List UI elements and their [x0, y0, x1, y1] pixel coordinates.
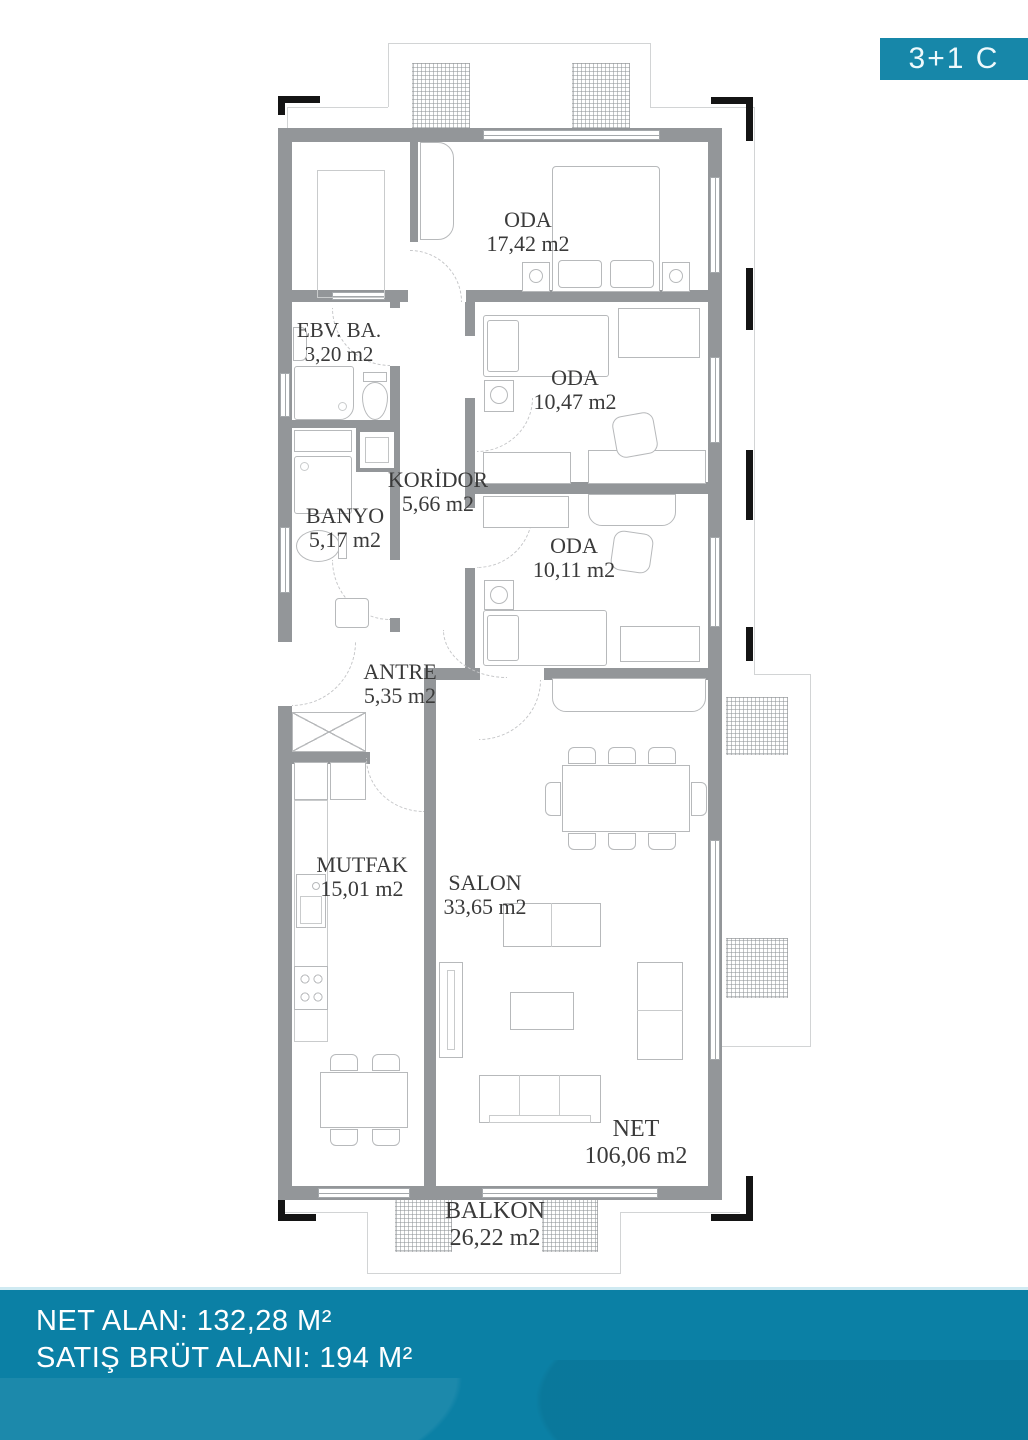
dim-tick — [746, 627, 753, 661]
gap-ebv-door — [390, 308, 400, 366]
sofa-divider — [551, 903, 552, 947]
room-label-koridor: KORİDOR 5,66 m2 — [388, 468, 488, 516]
roof-outline — [650, 43, 651, 107]
chair — [608, 833, 636, 850]
armchair-sofa — [637, 962, 683, 1060]
cabinet — [620, 626, 700, 662]
door-arc-salon — [479, 680, 541, 740]
hatch-top-left — [412, 63, 470, 129]
dim-tick — [711, 1214, 753, 1221]
room-name: ODA — [533, 366, 616, 390]
roof-outline — [388, 43, 389, 107]
room-label-salon: SALON 33,65 m2 — [443, 871, 526, 919]
shower — [294, 366, 354, 420]
kitchen-cabinet — [330, 762, 366, 800]
plan-type-label: 3+1 C — [909, 42, 1000, 76]
room-name: ODA — [486, 208, 569, 232]
room-label-balkon: BALKON 26,22 m2 — [445, 1198, 545, 1252]
room-area: 15,01 m2 — [316, 877, 407, 901]
kitchen-table — [320, 1072, 408, 1128]
window-bedroom-top — [483, 130, 660, 140]
room-name: BANYO — [306, 504, 384, 528]
pillow — [558, 260, 602, 288]
room-name: ANTRE — [363, 660, 436, 684]
chair — [691, 782, 707, 816]
dim-tick — [278, 96, 285, 115]
dim-tick — [746, 268, 753, 330]
window-bedroom-right — [710, 177, 720, 273]
gross-area-text: SATIŞ BRÜT ALANI: 194 M² — [36, 1340, 413, 1377]
roof-outline — [650, 107, 754, 108]
bath-sink — [335, 598, 369, 628]
shower-drain — [338, 402, 347, 411]
balcony-outline — [620, 1212, 621, 1273]
balcony-outline — [620, 1212, 740, 1213]
room-label-mutfak: MUTFAK 15,01 m2 — [316, 853, 407, 901]
pillow — [487, 615, 519, 661]
roof-outline-right — [754, 107, 755, 674]
wardrobe — [420, 142, 454, 240]
room-label-antre: ANTRE 5,35 m2 — [363, 660, 436, 708]
toilet — [362, 382, 388, 420]
chair — [330, 1129, 358, 1146]
footer-band: NET ALAN: 132,28 M² SATIŞ BRÜT ALANI: 19… — [0, 1290, 1028, 1440]
room-area: 17,42 m2 — [486, 232, 569, 256]
roof-outline — [287, 107, 388, 108]
desk — [588, 450, 706, 484]
lamp — [529, 269, 543, 283]
lamp — [490, 586, 508, 604]
room-area: 10,11 m2 — [533, 558, 615, 582]
pillow — [487, 320, 519, 372]
room-label-net: NET 106,06 m2 — [585, 1116, 688, 1170]
shaft — [356, 428, 398, 472]
wall-ebv-bottom — [292, 420, 390, 428]
window-salon-right — [710, 840, 720, 1060]
cabinet — [483, 452, 571, 484]
room-name: EBV. BA. — [297, 318, 381, 342]
washing-machine — [294, 430, 352, 452]
fridge — [294, 762, 328, 800]
roof-outline-top — [388, 43, 650, 44]
pillow — [610, 260, 654, 288]
sideboard — [552, 678, 706, 712]
coffee-table — [510, 992, 574, 1030]
room-area: 5,35 m2 — [363, 684, 436, 708]
chair — [648, 747, 676, 764]
closet-outline — [317, 170, 385, 298]
hatch-side-top — [726, 697, 788, 755]
lamp — [490, 386, 508, 404]
door-arc-entry — [292, 642, 356, 706]
room-area: 106,06 m2 — [585, 1143, 688, 1170]
door-arc-bedroom — [410, 250, 462, 302]
chair — [545, 782, 561, 816]
sofa-divider — [519, 1075, 520, 1115]
balcony-outline — [367, 1212, 368, 1273]
room-label-ebv-banyo: EBV. BA. 3,20 m2 — [297, 318, 381, 366]
side-balcony-outline — [722, 1046, 811, 1047]
dim-tick — [746, 97, 753, 141]
room-area: 5,66 m2 — [388, 492, 488, 516]
side-balcony-outline — [754, 674, 811, 675]
tv — [447, 970, 455, 1050]
area-summary: NET ALAN: 132,28 M² SATIŞ BRÜT ALANI: 19… — [36, 1303, 413, 1377]
gap-oda2-door — [465, 336, 475, 398]
door-arc-mutfak — [366, 758, 424, 812]
room-name: NET — [585, 1116, 688, 1143]
room-label-oda-master: ODA 17,42 m2 — [486, 208, 569, 256]
room-label-banyo: BANYO 5,17 m2 — [306, 504, 384, 552]
room-area: 26,22 m2 — [445, 1225, 545, 1252]
chair — [568, 747, 596, 764]
hatch-side-bottom — [726, 938, 788, 998]
room-area: 33,65 m2 — [443, 895, 526, 919]
room-area: 3,20 m2 — [297, 342, 381, 366]
chair — [372, 1129, 400, 1146]
sofa-divider — [637, 1010, 683, 1011]
sofa-base — [489, 1115, 591, 1123]
desk-chair — [611, 411, 660, 460]
sofa-divider — [559, 1075, 560, 1115]
room-name: BALKON — [445, 1198, 545, 1225]
toilet-tank — [363, 372, 387, 382]
chair — [568, 833, 596, 850]
room-area: 10,47 m2 — [533, 390, 616, 414]
dim-tick — [746, 450, 753, 520]
balcony-outline — [278, 1212, 367, 1213]
entry-shaft-xbox — [292, 712, 366, 752]
room-label-oda-3: ODA 10,11 m2 — [533, 534, 615, 582]
room-name: SALON — [443, 871, 526, 895]
side-balcony-outline — [810, 674, 811, 1046]
stove — [294, 966, 328, 1010]
gap-banyo-door — [390, 560, 400, 618]
chair — [608, 747, 636, 764]
hatch-top-right — [572, 63, 630, 129]
window-salon-bottom — [482, 1188, 658, 1198]
window-oda2-right — [710, 357, 720, 443]
roof-outline — [287, 107, 288, 128]
room-name: KORİDOR — [388, 468, 488, 492]
wardrobe — [618, 308, 700, 358]
desk-chair — [609, 529, 654, 574]
desk — [483, 496, 569, 528]
chair — [648, 833, 676, 850]
floor-plan-page: ODA 17,42 m2 EBV. BA. 3,20 m2 ODA 10,47 … — [0, 0, 1028, 1440]
room-name: ODA — [533, 534, 615, 558]
wall-bedroom-partition — [410, 142, 418, 242]
net-area-text: NET ALAN: 132,28 M² — [36, 1303, 413, 1340]
window-banyo-left — [280, 527, 290, 593]
gap-entry-door — [278, 642, 292, 706]
dining-table — [562, 765, 690, 832]
window-mutfak-bottom — [318, 1188, 410, 1198]
window-oda3-right — [710, 537, 720, 627]
gap-oda3-door — [465, 508, 475, 568]
room-area: 5,17 m2 — [306, 528, 384, 552]
balcony-outline — [367, 1273, 621, 1274]
plan-type-badge: 3+1 C — [880, 38, 1028, 80]
chair — [330, 1054, 358, 1071]
shower-drain — [300, 462, 309, 471]
lamp — [669, 269, 683, 283]
window-ebv-left — [280, 373, 290, 417]
room-name: MUTFAK — [316, 853, 407, 877]
dim-tick — [278, 1200, 285, 1221]
desk — [588, 494, 676, 526]
chair — [372, 1054, 400, 1071]
wall-mutfak-salon — [424, 668, 436, 1186]
room-label-oda-2: ODA 10,47 m2 — [533, 366, 616, 414]
